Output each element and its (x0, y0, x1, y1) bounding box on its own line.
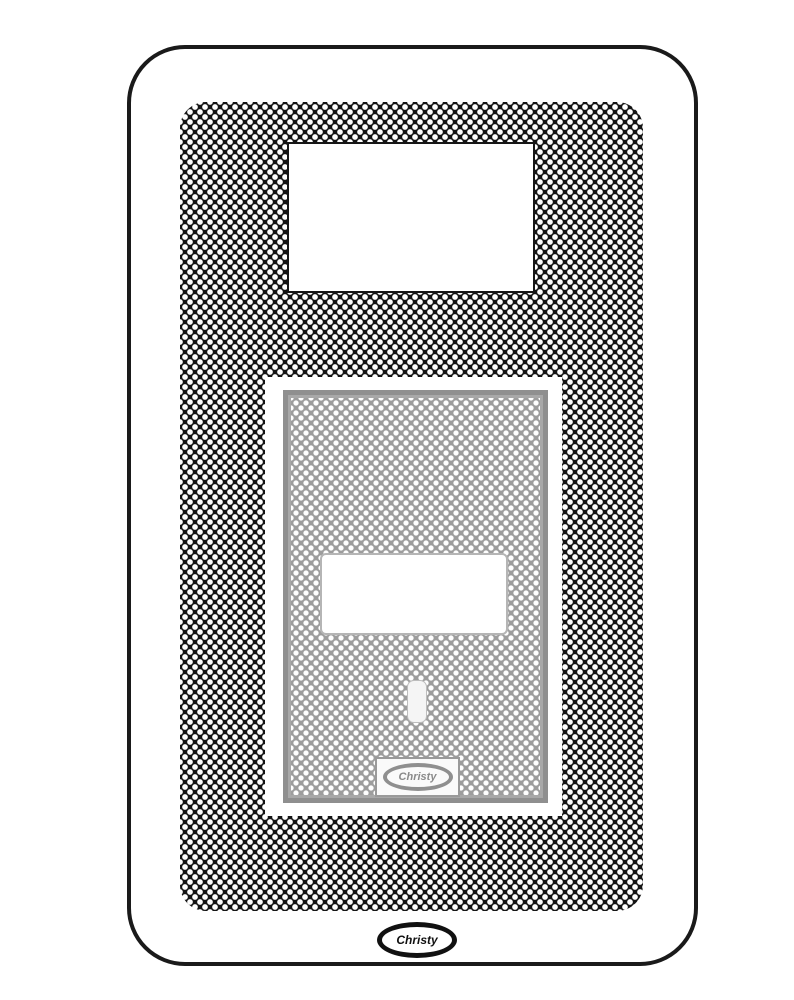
lid-window (320, 553, 508, 635)
lid-logo-plate: Christy (375, 757, 460, 797)
lid-logo-oval-icon: Christy (383, 763, 453, 791)
brand-logo-text: Christy (396, 934, 437, 946)
brand-logo-oval-icon: Christy (377, 922, 457, 958)
christy-valve-box-cover-diagram: 12 Christy Christy (0, 0, 794, 1000)
lid-logo-text: Christy (399, 772, 437, 783)
label-window (287, 142, 535, 293)
lid-slot (407, 680, 427, 723)
